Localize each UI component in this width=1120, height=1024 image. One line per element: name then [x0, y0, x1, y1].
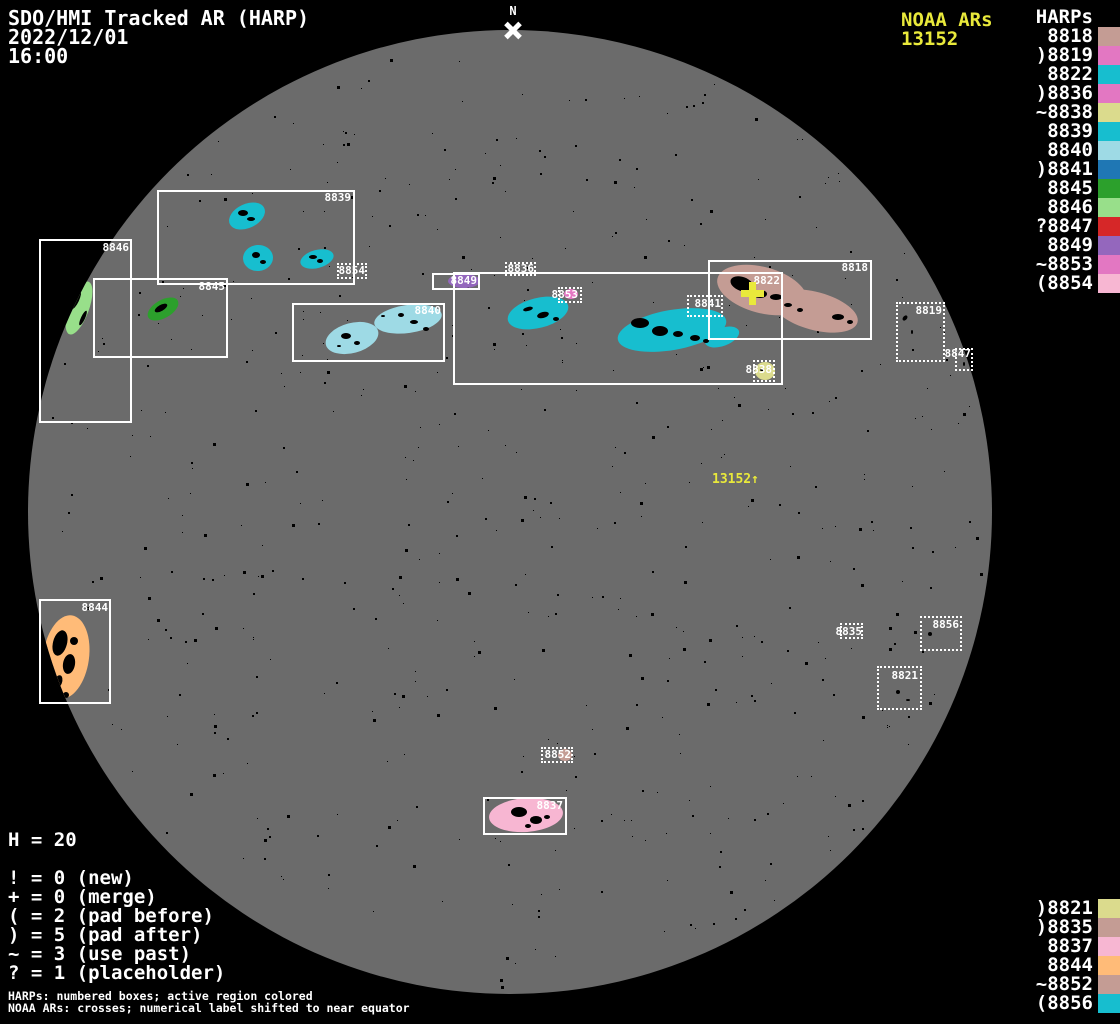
speckle	[192, 468, 193, 469]
speckle	[713, 923, 715, 925]
speckle	[500, 979, 503, 982]
harp-color-swatch-8846	[1098, 198, 1120, 217]
harp-color-swatch-8818	[1098, 27, 1120, 46]
speckle	[337, 86, 340, 89]
speckle	[179, 694, 181, 696]
speckle	[592, 729, 593, 730]
speckle	[283, 447, 285, 449]
speckle	[651, 613, 654, 616]
speckle	[833, 694, 835, 696]
speckle	[439, 424, 440, 425]
speckle	[538, 910, 540, 912]
harp-color-swatch-8844	[1098, 956, 1120, 975]
harp-label-8838: 8838	[746, 363, 773, 376]
speckle	[931, 429, 932, 430]
speckle	[908, 716, 910, 718]
speckle	[376, 845, 378, 847]
speckle	[177, 744, 178, 745]
speckle	[293, 123, 294, 124]
speckle	[715, 689, 717, 691]
speckle	[261, 575, 264, 578]
speckle	[302, 578, 304, 580]
speckle	[573, 211, 574, 212]
speckle	[166, 832, 168, 834]
speckle	[283, 879, 284, 880]
speckle	[624, 820, 625, 821]
speckle	[701, 463, 702, 464]
harp-color-swatch-8856	[1098, 994, 1120, 1013]
speckle	[684, 245, 685, 246]
speckle	[361, 88, 362, 89]
speckle	[256, 676, 258, 678]
speckle	[515, 584, 517, 586]
harp-label-8822: 8822	[754, 274, 781, 287]
speckle	[620, 492, 621, 493]
speckle	[861, 370, 863, 372]
speckle	[214, 732, 216, 734]
speckle	[130, 456, 131, 457]
speckle	[711, 429, 712, 430]
speckle	[730, 891, 733, 894]
speckle	[887, 725, 888, 726]
speckle	[437, 372, 438, 373]
speckle	[765, 219, 766, 220]
speckle	[323, 144, 324, 145]
speckle	[213, 774, 216, 777]
speckle	[636, 168, 638, 170]
speckle	[515, 963, 516, 964]
speckle	[422, 273, 424, 275]
speckle	[736, 702, 737, 703]
speckle	[887, 727, 888, 728]
speckle	[958, 423, 959, 424]
speckle	[485, 153, 486, 154]
harp-list-top: 8818)88198822)8836~883888398840)88418845…	[1036, 27, 1093, 293]
speckle	[848, 804, 851, 807]
speckle	[471, 269, 472, 270]
speckle	[862, 716, 865, 719]
speckle	[955, 547, 956, 548]
harp-label-8821: 8821	[892, 669, 919, 682]
speckle	[343, 144, 345, 146]
speckle	[270, 659, 271, 660]
speckle	[191, 462, 193, 464]
speckle	[539, 150, 541, 152]
north-label: N	[509, 4, 516, 18]
speckle	[243, 858, 244, 859]
speckle	[167, 716, 168, 717]
speckle	[601, 820, 603, 822]
speckle	[403, 603, 404, 604]
speckle	[194, 639, 197, 642]
harp-label-8847: 8847	[945, 347, 972, 360]
speckle	[387, 761, 388, 762]
speckle	[132, 435, 133, 436]
speckle	[324, 382, 326, 384]
speckle	[253, 639, 254, 640]
speckle	[485, 518, 487, 520]
speckle	[686, 106, 688, 108]
speckle	[462, 256, 465, 259]
speckle	[336, 682, 338, 684]
harp-color-swatch-8847	[1098, 217, 1120, 236]
speckle	[667, 680, 669, 682]
speckle	[345, 132, 347, 134]
speckle	[783, 803, 784, 804]
speckle	[514, 679, 515, 680]
speckle	[506, 957, 509, 960]
speckle	[275, 332, 277, 334]
speckle	[112, 724, 113, 725]
speckle	[474, 656, 475, 657]
speckle	[709, 639, 712, 642]
speckle	[459, 839, 460, 840]
speckle	[212, 579, 214, 581]
speckle	[540, 517, 541, 518]
speckle	[693, 105, 695, 107]
speckle	[765, 880, 766, 881]
speckle	[754, 700, 756, 702]
speckle	[555, 956, 556, 957]
speckle	[770, 559, 771, 560]
speckle	[922, 651, 924, 653]
speckle	[190, 493, 191, 494]
speckle	[667, 880, 668, 881]
speckle	[889, 726, 890, 727]
speckle	[853, 568, 855, 570]
speckle	[516, 452, 517, 453]
speckle	[689, 482, 690, 483]
speckle	[664, 931, 665, 932]
speckle	[267, 828, 269, 830]
speckle	[68, 512, 70, 514]
speckle	[644, 256, 647, 259]
speckle	[324, 693, 325, 694]
speckle	[262, 545, 263, 546]
speckle	[969, 406, 970, 407]
speckle	[347, 143, 350, 146]
speckle	[281, 876, 282, 877]
speckle	[389, 225, 391, 227]
speckle	[439, 553, 440, 554]
speckle	[748, 506, 749, 507]
speckle	[704, 661, 706, 663]
speckle	[789, 607, 791, 609]
speckle	[714, 84, 715, 85]
speckle	[768, 409, 769, 410]
speckle	[419, 559, 420, 560]
speckle	[676, 627, 677, 628]
speckle	[657, 792, 658, 793]
speckle	[963, 413, 966, 416]
speckle	[492, 182, 494, 184]
title-block: SDO/HMI Tracked AR (HARP) 2022/12/01 16:…	[8, 9, 309, 66]
harp-color-swatch-8839	[1098, 122, 1120, 141]
speckle	[702, 102, 704, 104]
speckle	[908, 744, 909, 745]
speckle	[256, 712, 258, 714]
speckle	[559, 518, 560, 519]
speckle	[822, 528, 823, 529]
speckle	[495, 838, 496, 839]
speckle	[896, 613, 899, 616]
speckle	[214, 725, 217, 728]
harp-list-bottom: )8821)883588378844~8852(8856	[1036, 899, 1093, 1013]
speckle	[873, 530, 874, 531]
speckle	[92, 581, 94, 583]
speckle	[211, 174, 212, 175]
speckle	[675, 154, 677, 156]
speckle	[652, 436, 655, 439]
speckle	[690, 924, 692, 926]
speckle	[150, 436, 151, 437]
speckle	[702, 522, 703, 523]
speckle	[853, 829, 855, 831]
speckle	[592, 597, 593, 598]
speckle	[631, 820, 632, 821]
speckle	[187, 663, 188, 664]
speckle	[569, 100, 570, 101]
speckle	[597, 528, 598, 529]
speckle	[862, 828, 864, 830]
speckle	[399, 707, 400, 708]
speckle	[388, 826, 391, 829]
speckle	[691, 199, 693, 201]
speckle	[624, 452, 626, 454]
speckle	[929, 702, 932, 705]
speckle	[379, 190, 381, 192]
speckle	[394, 693, 396, 695]
harp-label-8845: 8845	[199, 280, 226, 293]
speckle	[626, 727, 629, 730]
speckle	[405, 549, 408, 552]
speckle	[459, 61, 460, 62]
speckle	[535, 949, 536, 950]
speckle	[373, 719, 376, 722]
speckle	[618, 609, 619, 610]
speckle	[252, 715, 254, 717]
speckle	[397, 820, 398, 821]
speckle	[818, 642, 819, 643]
speckle	[255, 410, 257, 412]
speckle	[121, 729, 122, 730]
speckle	[501, 986, 504, 989]
speckle	[444, 149, 446, 151]
speckle	[521, 389, 522, 390]
speckle	[333, 411, 334, 412]
speckle	[474, 641, 475, 642]
speckle	[252, 350, 253, 351]
speckle	[257, 818, 258, 819]
speckle	[171, 571, 173, 573]
speckle	[719, 866, 721, 868]
speckle	[828, 177, 829, 178]
speckle	[500, 165, 501, 166]
speckle	[246, 361, 248, 363]
speckle	[718, 388, 719, 389]
speckle	[300, 372, 301, 373]
harp-box-8844	[39, 599, 111, 704]
speckle	[932, 551, 934, 553]
speckle	[825, 183, 826, 184]
speckle	[327, 182, 328, 183]
speckle	[790, 466, 791, 467]
speckle	[640, 502, 643, 505]
speckle	[602, 596, 604, 598]
speckle	[532, 258, 533, 259]
speckle	[458, 446, 459, 447]
speckle	[204, 534, 207, 537]
speckle	[829, 401, 830, 402]
speckle	[482, 478, 483, 479]
speckle	[521, 519, 524, 522]
harp-count: H = 20	[8, 831, 77, 850]
speckle	[231, 319, 232, 320]
speckle	[787, 650, 789, 652]
speckle	[585, 99, 587, 101]
harp-list-item-8854: (8854	[1036, 274, 1093, 293]
speckle	[339, 295, 341, 297]
speckle	[425, 215, 426, 216]
speckle	[468, 592, 471, 595]
speckle	[797, 139, 798, 140]
speckle	[574, 828, 575, 829]
speckle	[182, 515, 183, 516]
speckle	[792, 413, 794, 415]
speckle	[566, 790, 567, 791]
speckle	[614, 522, 616, 524]
speckle	[148, 639, 149, 640]
speckle	[586, 179, 588, 181]
speckle	[825, 658, 826, 659]
speckle	[264, 839, 267, 842]
speckle	[636, 616, 637, 617]
harp-label-8856: 8856	[933, 618, 960, 631]
harp-color-swatch-8821	[1098, 899, 1120, 918]
speckle	[835, 397, 837, 399]
speckle	[555, 850, 556, 851]
speckle	[165, 629, 167, 631]
speckle	[203, 578, 205, 580]
speckle	[269, 836, 271, 838]
speckle	[710, 833, 711, 834]
speckle	[544, 156, 546, 158]
speckle	[392, 588, 394, 590]
harp-box-8839	[157, 190, 355, 285]
speckle	[246, 483, 249, 486]
speckle	[720, 851, 722, 853]
speckle	[71, 494, 73, 496]
speckle	[632, 836, 633, 837]
speckle	[754, 636, 755, 637]
speckle	[980, 573, 983, 576]
speckle	[202, 613, 204, 615]
speckle	[830, 561, 831, 562]
time-label: 16:00	[8, 47, 309, 66]
speckle	[223, 773, 224, 774]
speckle	[317, 835, 319, 837]
speckle	[524, 496, 527, 499]
noaa-cross-icon	[741, 290, 764, 297]
speckle	[722, 420, 723, 421]
speckle	[368, 80, 370, 82]
speckle	[835, 796, 836, 797]
speckle	[798, 512, 800, 514]
speckle	[343, 131, 344, 132]
speckle	[544, 409, 546, 411]
speckle	[624, 98, 625, 99]
speckle	[148, 597, 151, 600]
speckle	[738, 404, 741, 407]
speckle	[771, 683, 772, 684]
speckle	[264, 858, 266, 860]
speckle	[327, 371, 330, 374]
noaa-header: NOAA ARs 13152	[901, 11, 993, 49]
speckle	[754, 819, 756, 821]
speckle	[639, 96, 640, 97]
speckle	[420, 427, 421, 428]
speckle	[454, 413, 456, 415]
speckle	[488, 430, 489, 431]
harp-color-swatch-8822	[1098, 65, 1120, 84]
speckle	[190, 793, 193, 796]
speckle	[864, 479, 865, 480]
speckle	[684, 581, 687, 584]
speckle	[679, 734, 680, 735]
speckle	[241, 525, 242, 526]
speckle	[521, 771, 523, 773]
speckle	[894, 643, 896, 645]
speckle	[413, 865, 416, 868]
speckle	[910, 527, 912, 529]
speckle	[505, 191, 506, 192]
harp-color-swatch-8840	[1098, 141, 1120, 160]
speckle	[418, 447, 419, 448]
speckle	[337, 814, 338, 815]
speckle	[642, 790, 644, 792]
speckle	[140, 577, 141, 578]
speckle	[408, 524, 410, 526]
speckle	[415, 391, 416, 392]
speckle	[247, 763, 248, 764]
speckle	[805, 662, 808, 665]
speckle	[322, 500, 323, 501]
speckle	[132, 771, 133, 772]
speckle	[823, 740, 824, 741]
speckle	[944, 471, 945, 472]
speckle	[707, 703, 710, 706]
speckle	[157, 619, 160, 622]
speckle	[794, 712, 796, 714]
speckle	[914, 631, 917, 634]
speckle	[493, 177, 496, 180]
harp-color-swatch-8841	[1098, 160, 1120, 179]
speckle	[452, 493, 453, 494]
speckle	[399, 576, 402, 579]
speckle	[406, 479, 407, 480]
speckle	[354, 134, 355, 135]
speckle	[402, 695, 405, 698]
speckle	[505, 445, 506, 446]
speckle	[432, 133, 433, 134]
speckle	[744, 909, 746, 911]
speckle	[645, 840, 646, 841]
speckle	[251, 298, 252, 299]
speckle	[859, 528, 862, 531]
speckle	[437, 714, 440, 717]
speckle	[902, 581, 903, 582]
speckle	[666, 833, 667, 834]
